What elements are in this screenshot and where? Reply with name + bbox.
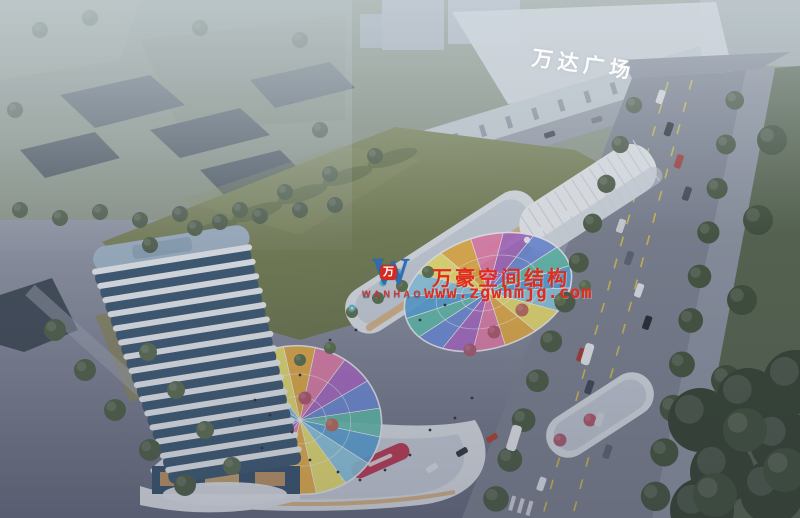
aerial-rendering: 万达广场 W 万 WANHAO 万豪空间结构 www.zgwhmjg.com <box>0 0 800 518</box>
vignette <box>0 0 800 518</box>
rendering-canvas <box>0 0 800 518</box>
